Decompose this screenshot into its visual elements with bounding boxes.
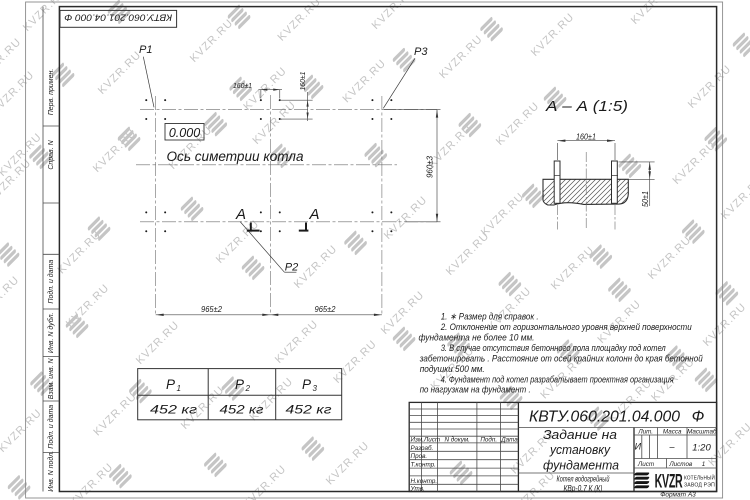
svg-text:Задание на: Задание на xyxy=(543,428,617,442)
svg-text:Справ. N: Справ. N xyxy=(48,139,55,169)
svg-text:Взам. инв. N: Взам. инв. N xyxy=(48,357,55,399)
svg-text:2: 2 xyxy=(245,384,251,393)
svg-text:160±1: 160±1 xyxy=(576,132,596,142)
svg-text:Котел водогрейный: Котел водогрейный xyxy=(557,475,610,484)
svg-text:50±1: 50±1 xyxy=(640,191,650,207)
svg-text:–: – xyxy=(668,442,675,452)
svg-text:ЗАВОД РЭП: ЗАВОД РЭП xyxy=(684,483,715,489)
svg-text:160±1: 160±1 xyxy=(298,72,307,91)
svg-text:Утв.: Утв. xyxy=(410,486,425,493)
svg-text:1: 1 xyxy=(702,461,706,468)
svg-text:КВТУ.060.201.04.000 Ф: КВТУ.060.201.04.000 Ф xyxy=(64,11,172,22)
svg-text:965±2: 965±2 xyxy=(315,304,336,314)
svg-text:Р3: Р3 xyxy=(414,46,428,58)
svg-text:1: 1 xyxy=(177,384,181,393)
svg-text:Подп. и дата: Подп. и дата xyxy=(47,260,55,304)
svg-text:Ось симетрии котла: Ось симетрии котла xyxy=(167,149,304,164)
svg-text:установку: установку xyxy=(549,443,611,457)
svg-text:0.000: 0.000 xyxy=(169,126,200,140)
svg-text:452 кг: 452 кг xyxy=(150,403,197,417)
svg-text:Масса: Масса xyxy=(663,429,682,436)
svg-text:КВр-0,7 К (К): КВр-0,7 К (К) xyxy=(564,484,603,493)
svg-text:по нагрузкам на фундамент .: по нагрузкам на фундамент . xyxy=(420,385,531,395)
svg-text:4. Фундамент под котел разраба: 4. Фундамент под котел разрабатывает про… xyxy=(441,374,674,384)
svg-text:фундамента: фундамента xyxy=(543,459,619,473)
svg-text:Пров.: Пров. xyxy=(411,453,428,460)
svg-text:Н.контр.: Н.контр. xyxy=(411,478,438,485)
svg-text:Разраб.: Разраб. xyxy=(411,444,434,452)
svg-text:КВТУ.060.201.04.000: КВТУ.060.201.04.000 xyxy=(529,409,680,426)
svg-text:Р: Р xyxy=(166,377,175,392)
svg-text:1:20: 1:20 xyxy=(692,443,711,454)
svg-text:452 кг: 452 кг xyxy=(286,403,332,417)
svg-text:фундамента не более 10 мм.: фундамента не более 10 мм. xyxy=(419,332,535,342)
svg-text:Листов: Листов xyxy=(668,461,693,468)
svg-text:Лит.: Лит. xyxy=(637,429,653,436)
svg-text:Перв. примен.: Перв. примен. xyxy=(48,69,55,116)
svg-text:Т.контр.: Т.контр. xyxy=(411,462,436,469)
svg-text:Ф: Ф xyxy=(692,409,705,426)
svg-text:KVZR: KVZR xyxy=(655,471,683,492)
svg-text:подушки 500 мм.: подушки 500 мм. xyxy=(420,364,485,374)
svg-text:Р: Р xyxy=(302,377,311,392)
svg-text:Инв. N подл.: Инв. N подл. xyxy=(47,451,55,492)
svg-text:Дата: Дата xyxy=(500,437,518,444)
svg-text:А: А xyxy=(309,206,320,223)
svg-text:Формат А3: Формат А3 xyxy=(660,492,696,499)
svg-text:Масштаб: Масштаб xyxy=(687,428,717,436)
svg-text:Р: Р xyxy=(235,377,244,392)
svg-text:Инв. N дубл.: Инв. N дубл. xyxy=(47,312,55,353)
svg-text:965±2: 965±2 xyxy=(201,304,222,314)
svg-text:КОТЕЛЬНЫЙ: КОТЕЛЬНЫЙ xyxy=(684,474,715,482)
svg-text:А – А (1:5): А – А (1:5) xyxy=(545,98,628,115)
svg-text:N докум.: N докум. xyxy=(444,436,469,444)
svg-text:Р2: Р2 xyxy=(285,262,298,274)
svg-text:И: И xyxy=(635,442,642,452)
svg-text:А: А xyxy=(235,206,246,223)
svg-text:2. Отклонение от горизонтально: 2. Отклонение от горизонтального уровня … xyxy=(440,322,692,332)
svg-text:Подп. и дата: Подп. и дата xyxy=(47,405,55,449)
svg-text:забетонировать . Расстояние от: забетонировать . Расстояние от осей край… xyxy=(419,353,703,363)
svg-text:Изм.Лист: Изм.Лист xyxy=(411,437,441,444)
svg-text:960±3: 960±3 xyxy=(425,156,435,178)
svg-text:160±1: 160±1 xyxy=(233,81,252,90)
svg-text:3: 3 xyxy=(313,384,318,393)
svg-text:Р1: Р1 xyxy=(139,44,152,56)
svg-text:1. ∗ Размер для справок .: 1. ∗ Размер для справок . xyxy=(441,312,539,322)
svg-text:3. В случае отсутствия бетонно: 3. В случае отсутствия бетонного пола пл… xyxy=(441,343,666,353)
svg-text:Подп.: Подп. xyxy=(480,436,497,444)
svg-text:452 кг: 452 кг xyxy=(220,403,264,417)
svg-text:Лист: Лист xyxy=(637,461,654,468)
